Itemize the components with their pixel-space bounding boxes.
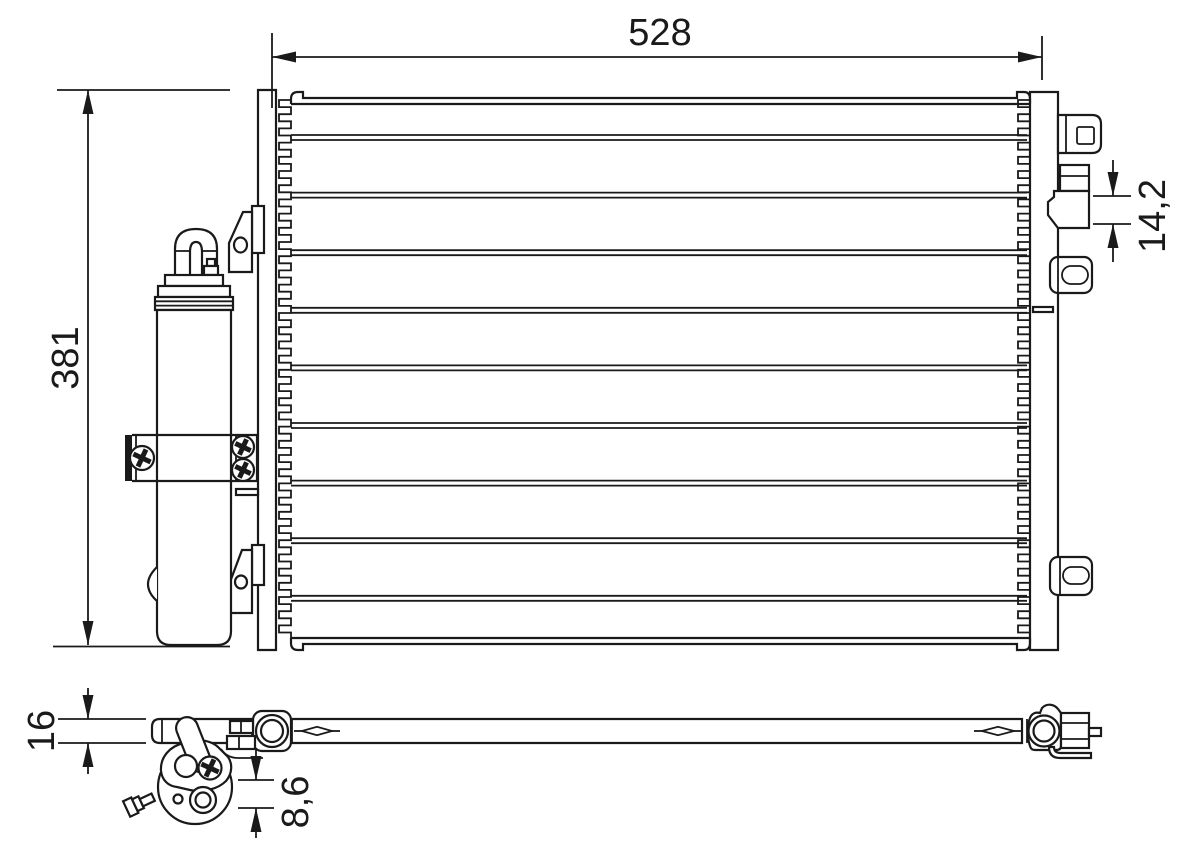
drier-screw xyxy=(197,755,222,780)
drier-ribbed-collar xyxy=(155,297,233,310)
clamp-screw-top-right xyxy=(232,436,255,459)
drier-head-small xyxy=(165,275,223,286)
fitting-block-label: 14,2 xyxy=(1132,179,1174,253)
drier-small-hole xyxy=(174,795,183,804)
mounting-tab-mid-right xyxy=(1050,257,1092,293)
front-view xyxy=(125,90,1101,650)
flow-diamond-icon-left xyxy=(294,727,340,735)
core-width-label: 528 xyxy=(628,12,691,54)
pipe-opening xyxy=(175,755,197,777)
side-bolt xyxy=(123,789,156,817)
right-pin xyxy=(1033,307,1053,312)
mounting-tab-bottom-right xyxy=(1050,557,1092,595)
mounting-tab-top-right xyxy=(1058,115,1101,153)
left-pin xyxy=(236,489,258,495)
clamp-screw-left xyxy=(129,445,154,470)
drier-port-label: 8,6 xyxy=(275,776,317,829)
pipe-port-right xyxy=(1028,705,1101,758)
dimension-fitting-block: 14,2 xyxy=(1093,160,1174,262)
clamp-screw-bottom-right xyxy=(232,459,255,482)
drier-side-bump xyxy=(148,567,157,601)
core-height-label: 381 xyxy=(45,326,87,389)
connector-pin xyxy=(1089,728,1101,736)
pipe-port-left xyxy=(253,711,291,751)
dimension-profile-depth: 16 xyxy=(21,688,146,774)
dimension-core-width: 528 xyxy=(272,12,1042,108)
left-serration xyxy=(279,100,291,640)
bottom-profile-view xyxy=(123,705,1101,824)
technical-drawing-canvas: 528 381 14,2 16 8,6 xyxy=(0,0,1200,849)
condenser-drawing: 528 381 14,2 16 8,6 xyxy=(0,0,1200,849)
core-tubes xyxy=(291,135,1027,601)
drier-port-inner xyxy=(196,793,211,808)
dimension-drier-port: 8,6 xyxy=(238,750,317,838)
flow-diamond-icon-right xyxy=(974,727,1022,735)
pipe-fitting-block xyxy=(1048,165,1089,228)
drier-head-large xyxy=(158,286,230,297)
drier-body xyxy=(157,310,231,645)
profile-depth-label: 16 xyxy=(21,710,63,752)
